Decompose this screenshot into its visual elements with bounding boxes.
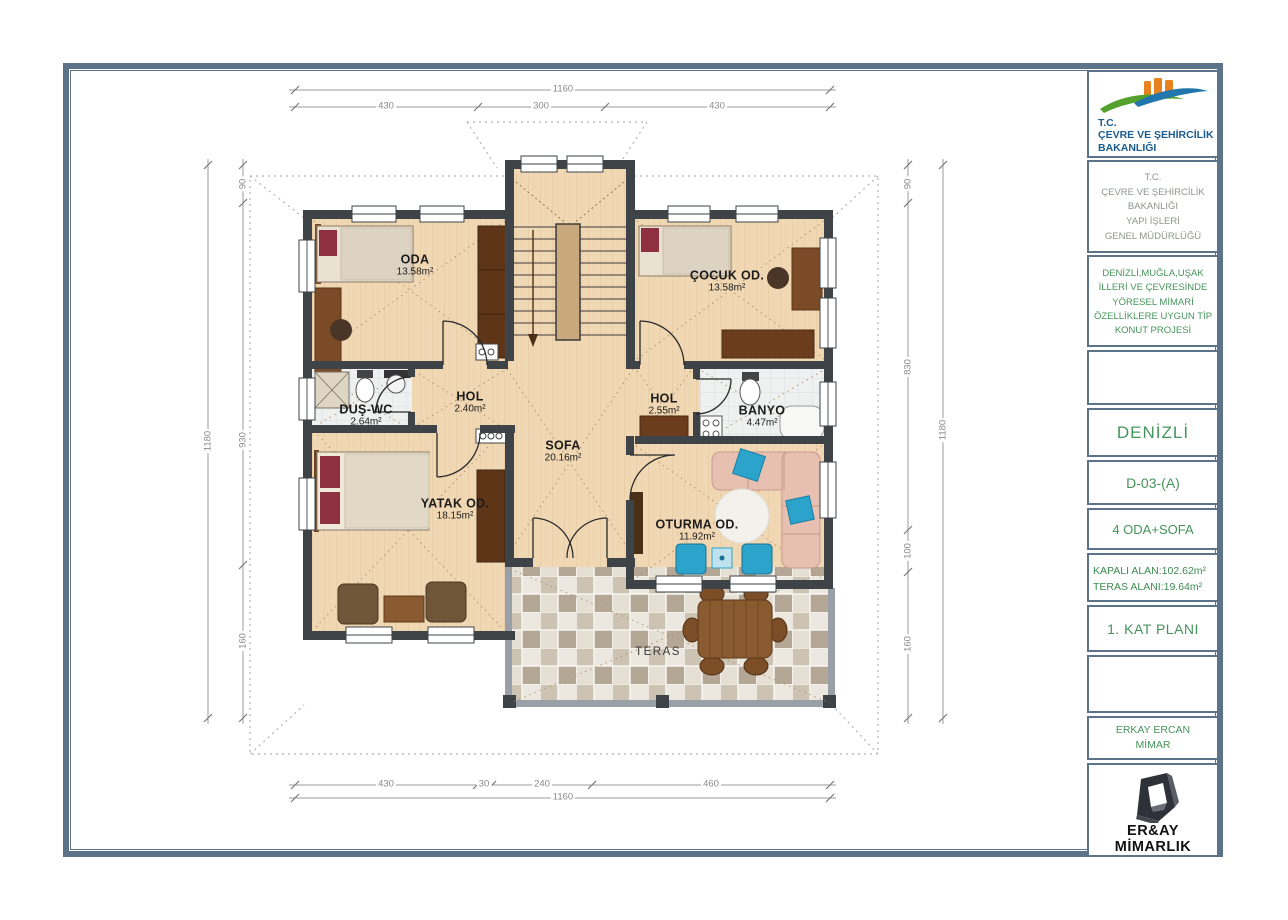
titleblock-project-cell: DENİZLİ,MUĞLA,UŞAK İLLERİ VE ÇEVRESİNDE … [1087, 255, 1219, 347]
room-name: ÇOCUK OD. [690, 269, 764, 283]
dim-top-seg-0: 430 [376, 101, 396, 112]
room-name: OTURMA OD. [655, 518, 738, 532]
dim-bottom-seg-3: 460 [701, 779, 721, 790]
room-area: 13.58m² [690, 283, 764, 294]
dim-right-seg-0: 90 [903, 177, 914, 192]
logo-line: BAKANLIĞI [1098, 142, 1217, 154]
firm-logo [1127, 769, 1179, 823]
terrace-area-value: TERAS ALANI:19.64m² [1093, 579, 1217, 595]
room-label-oturma: OTURMA OD. 11.92m² [655, 518, 738, 543]
dim-top-total: 1160 [551, 84, 575, 95]
ministry-line: GENEL MÜDÜRLÜĞÜ [1089, 230, 1217, 245]
house-type: 4 ODA+SOFA [1089, 522, 1217, 537]
room-name: YATAK OD. [421, 497, 489, 511]
dim-right-total: 1180 [938, 418, 949, 442]
dim-bottom-seg-0: 430 [376, 779, 396, 790]
dim-bottom-seg-1: 30 [477, 779, 492, 790]
room-label-duswc: DUŞ-WC 2.64m² [339, 403, 392, 428]
room-label-oda: ODA 13.58m² [397, 253, 434, 278]
dim-bottom-seg-2: 240 [532, 779, 552, 790]
project-line: İLLERİ VE ÇEVRESİNDE [1089, 281, 1217, 295]
room-area: 2.64m² [339, 417, 392, 428]
titleblock-empty-cell-2 [1087, 655, 1219, 713]
room-area: 20.16m² [545, 453, 582, 464]
titleblock-planname-cell: 1. KAT PLANI [1087, 605, 1219, 652]
room-name: TERAS [635, 646, 681, 658]
ministry-logo-text: T.C. ÇEVRE VE ŞEHİRCİLİK BAKANLIĞI [1089, 117, 1217, 154]
dim-right-seg-1: 830 [903, 357, 914, 377]
titleblock-city-cell: DENİZLİ [1087, 408, 1219, 457]
room-label-hol-255: HOL 2.55m² [648, 392, 679, 417]
project-line: KONUT PROJESİ [1089, 324, 1217, 338]
city-name: DENİZLİ [1089, 423, 1217, 443]
room-area: 2.40m² [454, 404, 485, 415]
room-label-banyo: BANYO 4.47m² [739, 404, 786, 429]
architect-title: MİMAR [1089, 738, 1217, 753]
room-area: 18.15m² [421, 511, 489, 522]
project-line: YÖRESEL MİMARİ [1089, 296, 1217, 310]
titleblock-area-cell: KAPALI ALAN:102.62m² TERAS ALANI:19.64m² [1087, 553, 1219, 602]
titleblock-architect-cell: ERKAY ERCAN MİMAR [1087, 716, 1219, 760]
titleblock-code-cell: D-03-(A) [1087, 460, 1219, 505]
drawing-sheet: ODA 13.58m² ÇOCUK OD. 13.58m² HOL 2.40m²… [0, 0, 1288, 920]
room-name: HOL [454, 390, 485, 404]
dim-bottom-total: 1160 [551, 792, 575, 803]
room-name: BANYO [739, 404, 786, 418]
architect-name: ERKAY ERCAN [1089, 723, 1217, 738]
dim-top-seg-2: 430 [707, 101, 727, 112]
ministry-logo [1094, 77, 1212, 117]
titleblock-empty-cell-1 [1087, 350, 1219, 405]
room-area: 2.55m² [648, 406, 679, 417]
project-line: DENİZLİ,MUĞLA,UŞAK [1089, 267, 1217, 281]
ministry-line: YAPI İŞLERİ [1089, 215, 1217, 230]
room-area: 13.58m² [397, 267, 434, 278]
logo-line: T.C. [1098, 117, 1217, 129]
room-name: DUŞ-WC [339, 403, 392, 417]
dim-left-seg-0: 90 [238, 177, 249, 192]
firm-email: e-mail: eraymim@gmail.com [1089, 856, 1217, 857]
room-label-hol-240: HOL 2.40m² [454, 390, 485, 415]
titleblock-ministry-cell: T.C. ÇEVRE VE ŞEHİRCİLİK BAKANLIĞI YAPI … [1087, 160, 1219, 253]
titleblock-type-cell: 4 ODA+SOFA [1087, 508, 1219, 550]
project-code: D-03-(A) [1089, 475, 1217, 491]
room-label-sofa: SOFA 20.16m² [545, 439, 582, 464]
room-name: SOFA [545, 439, 582, 453]
dim-top-seg-1: 300 [531, 101, 551, 112]
room-label-yatak: YATAK OD. 18.15m² [421, 497, 489, 522]
room-name: ODA [397, 253, 434, 267]
room-name: HOL [648, 392, 679, 406]
dim-right-seg-2: 100 [903, 541, 914, 561]
room-area: 4.47m² [739, 418, 786, 429]
room-area: 11.92m² [655, 532, 738, 543]
dim-right-seg-3: 160 [903, 634, 914, 654]
ministry-line: T.C. [1089, 171, 1217, 186]
ministry-line: BAKANLIĞI [1089, 200, 1217, 215]
ministry-line: ÇEVRE VE ŞEHİRCİLİK [1089, 186, 1217, 201]
dim-left-seg-2: 160 [238, 631, 249, 651]
project-line: ÖZELLİKLERE UYGUN TİP [1089, 310, 1217, 324]
dim-left-seg-1: 930 [238, 430, 249, 450]
room-label-teras: TERAS [635, 646, 681, 658]
dim-left-total: 1180 [203, 429, 214, 453]
logo-line: ÇEVRE VE ŞEHİRCİLİK [1098, 129, 1217, 141]
closed-area-value: KAPALI ALAN:102.62m² [1093, 563, 1217, 579]
plan-name: 1. KAT PLANI [1089, 621, 1217, 637]
titleblock-firm-cell: ER&AY MİMARLIK e-mail: eraymim@gmail.com [1087, 763, 1219, 857]
firm-name: ER&AY MİMARLIK [1089, 823, 1217, 855]
titleblock-ministry-logo-cell: T.C. ÇEVRE VE ŞEHİRCİLİK BAKANLIĞI [1087, 70, 1219, 158]
room-label-cocuk: ÇOCUK OD. 13.58m² [690, 269, 764, 294]
